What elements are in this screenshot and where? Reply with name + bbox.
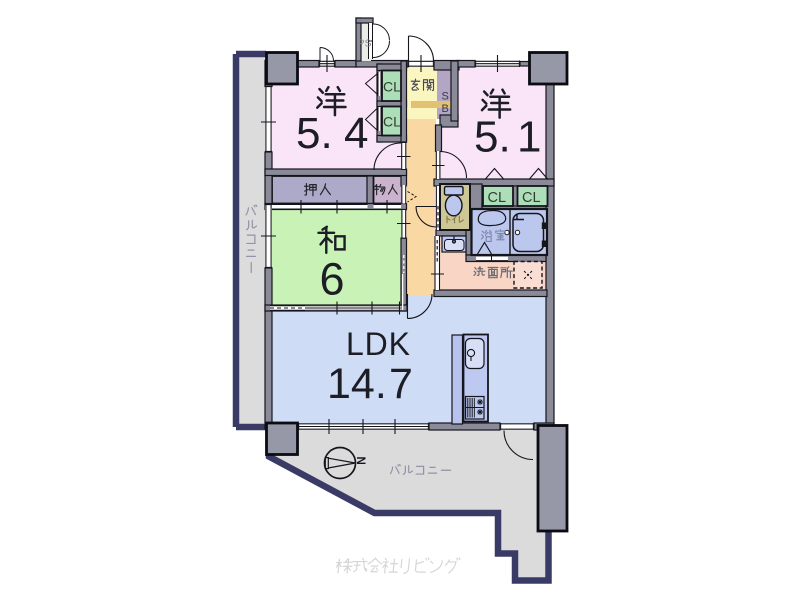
svg-text:6: 6 <box>320 254 345 305</box>
svg-text:4: 4 <box>344 109 368 158</box>
svg-text:CL: CL <box>488 190 507 206</box>
svg-text:N: N <box>354 457 366 465</box>
svg-text:CL: CL <box>522 190 541 206</box>
svg-text:5.: 5. <box>474 113 511 162</box>
svg-text:LDK: LDK <box>346 326 410 362</box>
svg-text:7: 7 <box>389 360 413 408</box>
svg-text:1: 1 <box>517 113 541 162</box>
svg-text:PS: PS <box>358 38 372 50</box>
svg-text:B: B <box>442 103 449 115</box>
svg-text:S: S <box>442 91 449 103</box>
svg-text:5.: 5. <box>296 109 333 158</box>
svg-text:CL: CL <box>383 114 401 130</box>
svg-text:14.: 14. <box>327 360 387 408</box>
svg-text:CL: CL <box>383 79 401 95</box>
